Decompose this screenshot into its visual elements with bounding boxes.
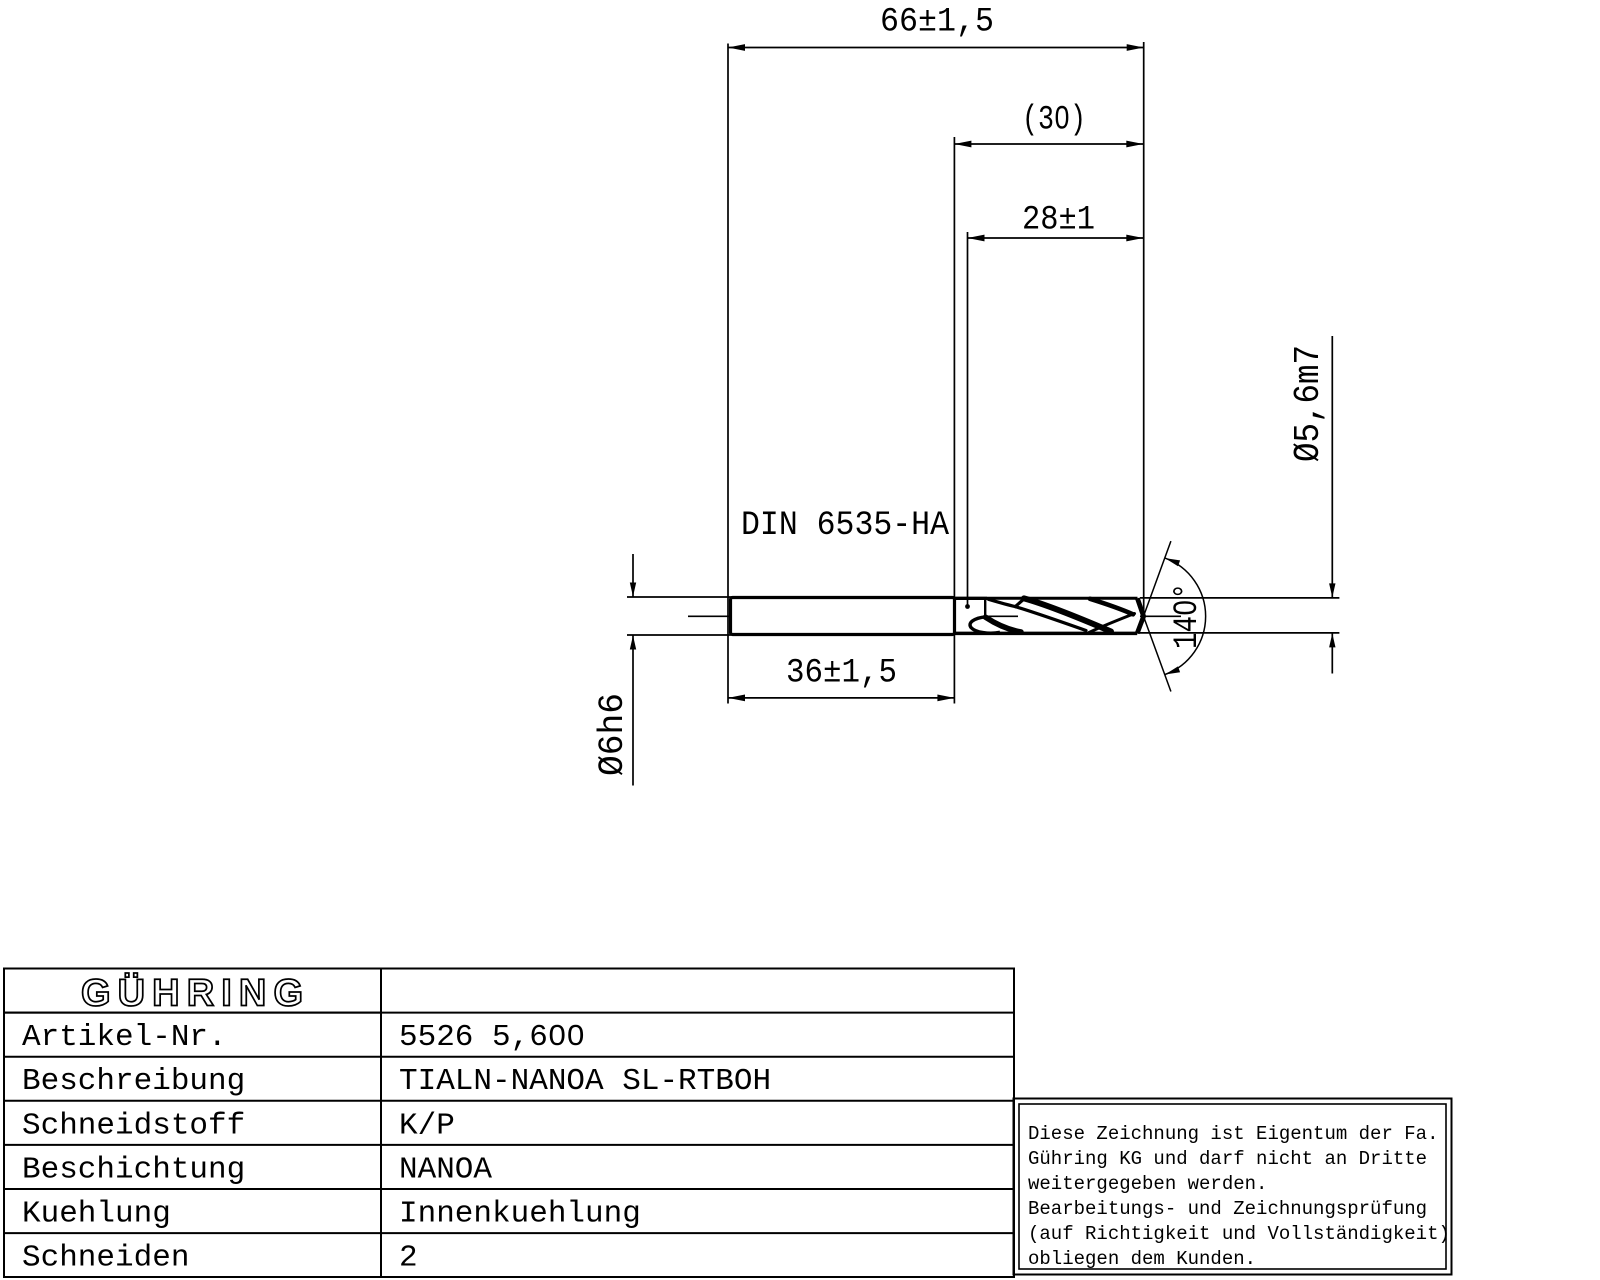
svg-text:140°: 140° — [1169, 583, 1207, 649]
svg-text:Gühring KG und darf nicht an D: Gühring KG und darf nicht an Dritte — [1028, 1148, 1427, 1170]
svg-text:Beschreibung: Beschreibung — [22, 1064, 245, 1099]
svg-text:Artikel-Nr.: Artikel-Nr. — [22, 1020, 227, 1055]
svg-text:28±1: 28±1 — [1022, 202, 1095, 240]
svg-text:K/P: K/P — [399, 1108, 455, 1143]
svg-text:DIN 6535-HA: DIN 6535-HA — [741, 507, 950, 545]
svg-text:Beschichtung: Beschichtung — [22, 1152, 245, 1187]
svg-text:Schneiden: Schneiden — [22, 1241, 189, 1276]
svg-text:weitergegeben werden.: weitergegeben werden. — [1028, 1173, 1267, 1195]
svg-text:TIALN-NANOA SL-RTBOH: TIALN-NANOA SL-RTBOH — [399, 1064, 771, 1099]
svg-text:Ø5,6m7: Ø5,6m7 — [1288, 345, 1329, 462]
svg-text:obliegen dem Kunden.: obliegen dem Kunden. — [1028, 1248, 1256, 1270]
svg-text:Ø6h6: Ø6h6 — [593, 693, 633, 776]
svg-text:36±1,5: 36±1,5 — [786, 655, 897, 693]
svg-text:(auf Richtigkeit und Vollständ: (auf Richtigkeit und Vollständigkeit) — [1028, 1223, 1450, 1245]
svg-text:NANOA: NANOA — [399, 1152, 492, 1187]
svg-text:66±1,5: 66±1,5 — [880, 4, 994, 42]
svg-text:Diese Zeichnung ist Eigentum d: Diese Zeichnung ist Eigentum der Fa. — [1028, 1123, 1438, 1145]
svg-text:(30): (30) — [1022, 102, 1086, 140]
svg-text:Kuehlung: Kuehlung — [22, 1197, 171, 1232]
svg-text:2: 2 — [399, 1241, 418, 1276]
svg-text:Innenkuehlung: Innenkuehlung — [399, 1197, 641, 1232]
svg-text:Bearbeitungs- und Zeichnungspr: Bearbeitungs- und Zeichnungsprüfung — [1028, 1198, 1427, 1220]
svg-text:Schneidstoff: Schneidstoff — [22, 1108, 245, 1143]
